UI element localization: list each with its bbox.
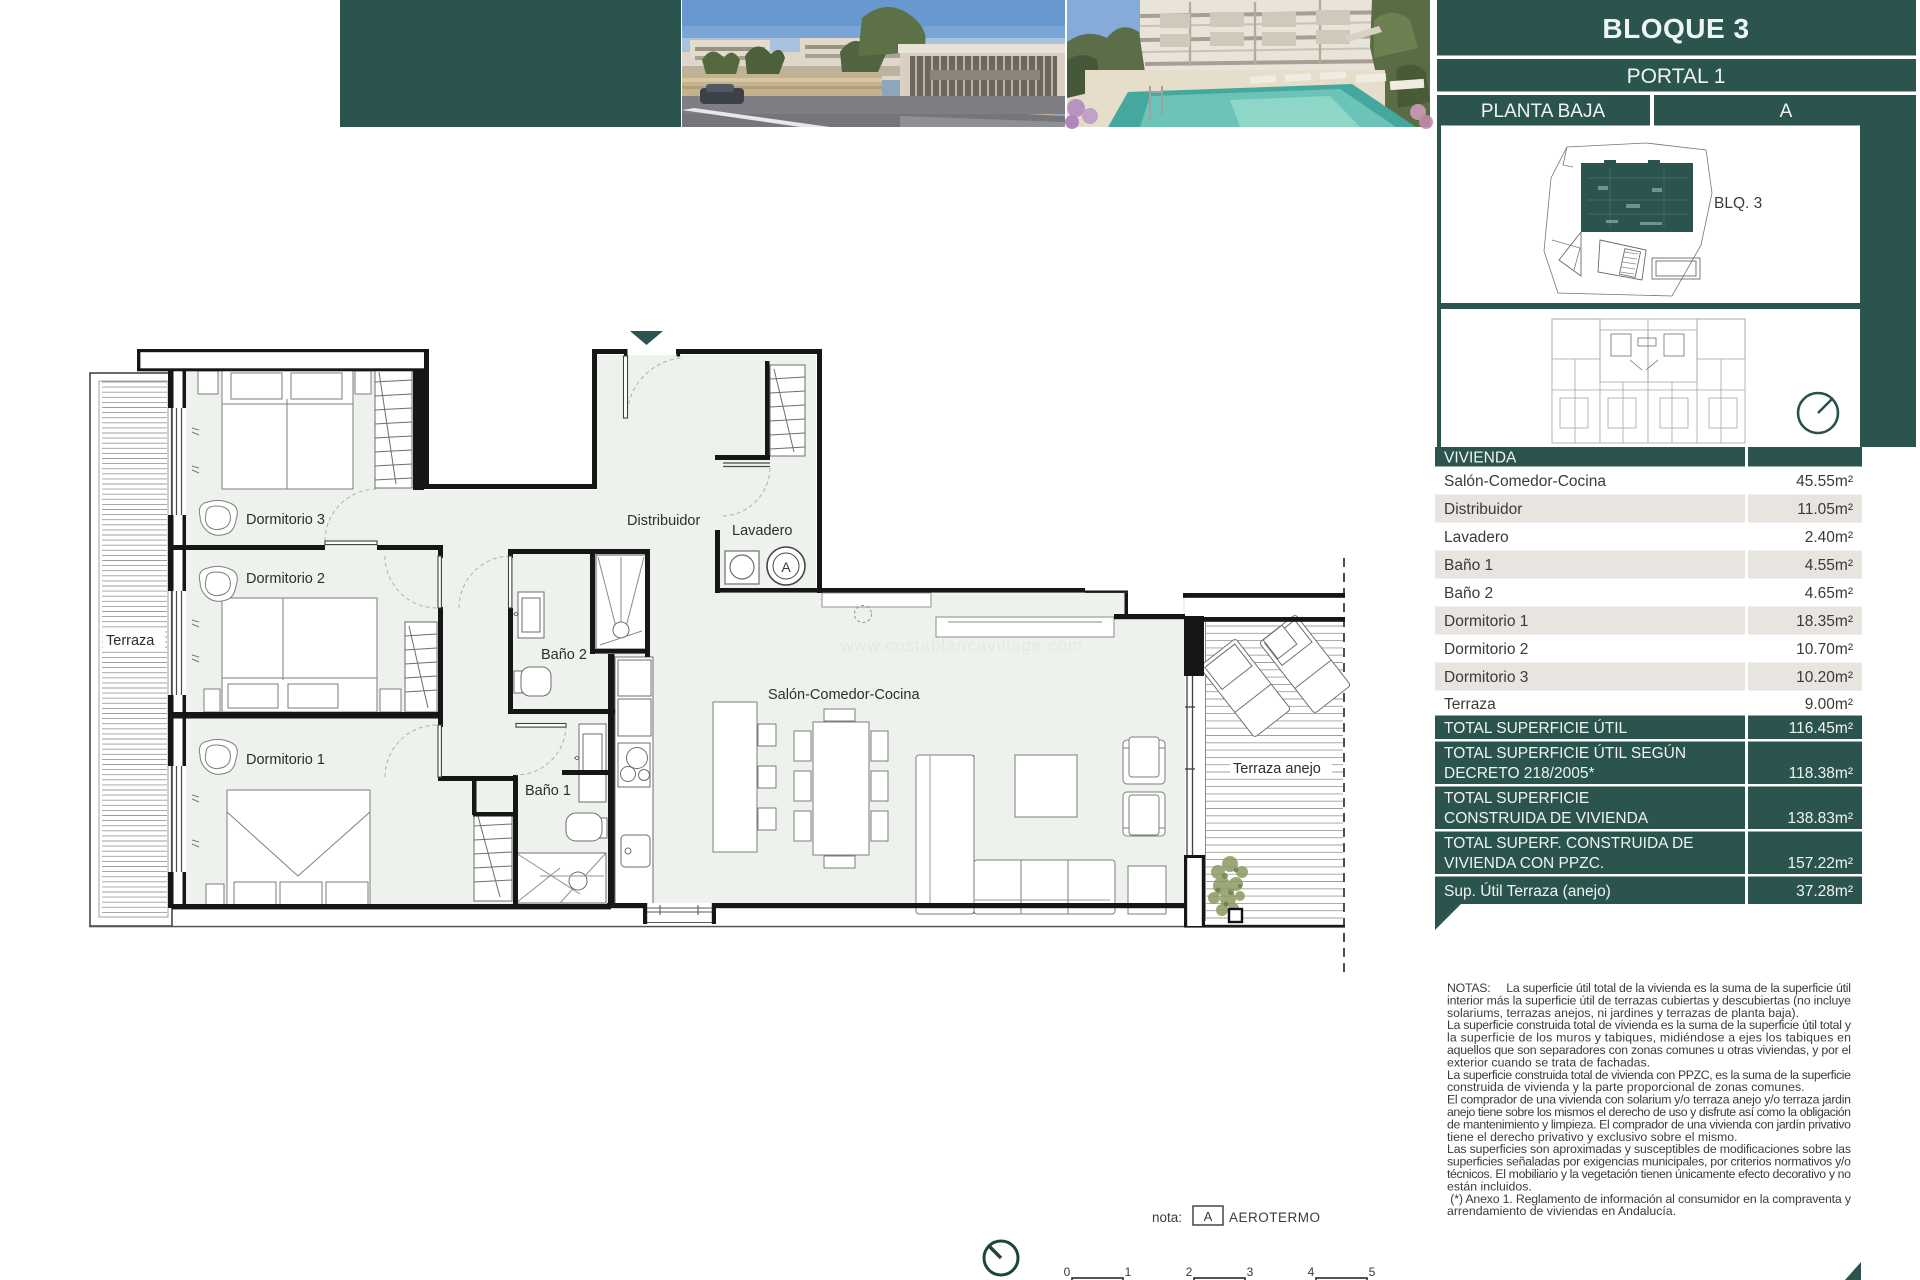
svg-text:Distribuidor: Distribuidor — [627, 513, 700, 529]
svg-text:4.65m²: 4.65m² — [1805, 585, 1853, 602]
svg-text:138.83m²: 138.83m² — [1788, 810, 1853, 827]
svg-text:Sup. Útil Terraza (anejo): Sup. Útil Terraza (anejo) — [1444, 883, 1611, 900]
svg-text:Dormitorio 2: Dormitorio 2 — [246, 571, 325, 587]
svg-text:DECRETO 218/2005*: DECRETO 218/2005* — [1444, 765, 1595, 782]
svg-text:Salón-Comedor-Cocina: Salón-Comedor-Cocina — [768, 687, 920, 703]
svg-text:CONSTRUIDA DE VIVIENDA: CONSTRUIDA DE VIVIENDA — [1444, 810, 1649, 827]
svg-text:2: 2 — [1186, 1265, 1193, 1279]
svg-text:Baño 2: Baño 2 — [1444, 585, 1493, 602]
svg-text:0: 0 — [1064, 1265, 1071, 1279]
svg-text:Dormitorio 2: Dormitorio 2 — [1444, 641, 1528, 658]
svg-text:9.00m²: 9.00m² — [1805, 696, 1853, 713]
svg-text:116.45m²: 116.45m² — [1789, 720, 1853, 737]
svg-text:Salón-Comedor-Cocina: Salón-Comedor-Cocina — [1444, 473, 1606, 490]
svg-text:Lavadero: Lavadero — [1444, 529, 1509, 546]
svg-text:PORTAL 1: PORTAL 1 — [1627, 65, 1726, 88]
svg-text:VIVIENDA: VIVIENDA — [1444, 450, 1517, 467]
svg-text:37.28m²: 37.28m² — [1796, 883, 1853, 900]
svg-text:Dormitorio 3: Dormitorio 3 — [1444, 669, 1528, 686]
svg-text:www.costablancavillage.com: www.costablancavillage.com — [840, 636, 1083, 655]
svg-text:11.05m²: 11.05m² — [1797, 501, 1853, 518]
svg-text:PLANTA BAJA: PLANTA BAJA — [1481, 101, 1606, 122]
svg-text:TOTAL SUPERFICIE ÚTIL SEGÚN: TOTAL SUPERFICIE ÚTIL SEGÚN — [1444, 745, 1686, 762]
svg-text:Terraza: Terraza — [1444, 696, 1496, 713]
svg-text:4.55m²: 4.55m² — [1805, 557, 1853, 574]
svg-text:Dormitorio 1: Dormitorio 1 — [1444, 613, 1528, 630]
svg-text:3: 3 — [1247, 1265, 1254, 1279]
svg-text:2.40m²: 2.40m² — [1805, 529, 1853, 546]
svg-text:A: A — [1780, 101, 1793, 122]
svg-text:4: 4 — [1308, 1265, 1315, 1279]
svg-text:Terraza: Terraza — [106, 633, 155, 649]
svg-text:BLQ. 3: BLQ. 3 — [1714, 195, 1762, 212]
svg-text:5: 5 — [1369, 1265, 1376, 1279]
svg-text:AEROTERMO: AEROTERMO — [1229, 1210, 1321, 1225]
svg-text:Lavadero: Lavadero — [732, 523, 792, 539]
svg-text:VIVIENDA CON PPZC.: VIVIENDA CON PPZC. — [1444, 855, 1604, 872]
svg-text:157.22m²: 157.22m² — [1788, 855, 1853, 872]
svg-text:nota:: nota: — [1152, 1210, 1182, 1225]
svg-text:10.20m²: 10.20m² — [1796, 669, 1853, 686]
svg-text:18.35m²: 18.35m² — [1796, 613, 1853, 630]
svg-text:BLOQUE 3: BLOQUE 3 — [1602, 13, 1749, 44]
svg-text:TOTAL SUPERFICIE ÚTIL: TOTAL SUPERFICIE ÚTIL — [1444, 720, 1628, 737]
svg-text:Distribuidor: Distribuidor — [1444, 501, 1522, 518]
svg-text:A: A — [1204, 1209, 1213, 1224]
svg-text:TOTAL SUPERFICIE: TOTAL SUPERFICIE — [1444, 790, 1589, 807]
svg-text:Baño 2: Baño 2 — [541, 647, 587, 663]
svg-text:A: A — [781, 559, 791, 575]
svg-text:Terraza anejo: Terraza anejo — [1233, 761, 1321, 777]
svg-text:TOTAL SUPERF. CONSTRUIDA DE: TOTAL SUPERF. CONSTRUIDA DE — [1444, 835, 1693, 852]
svg-text:1: 1 — [1125, 1265, 1132, 1279]
svg-text:Baño 1: Baño 1 — [525, 783, 571, 799]
svg-text:118.38m²: 118.38m² — [1789, 765, 1853, 782]
svg-text:Dormitorio 3: Dormitorio 3 — [246, 512, 325, 528]
svg-text:Dormitorio 1: Dormitorio 1 — [246, 752, 325, 768]
svg-text:10.70m²: 10.70m² — [1796, 641, 1853, 658]
svg-text:Baño 1: Baño 1 — [1444, 557, 1493, 574]
svg-text:arrendamiento de viviendas en: arrendamiento de viviendas en Andalucía. — [1447, 1204, 1676, 1218]
svg-text:45.55m²: 45.55m² — [1796, 473, 1853, 490]
